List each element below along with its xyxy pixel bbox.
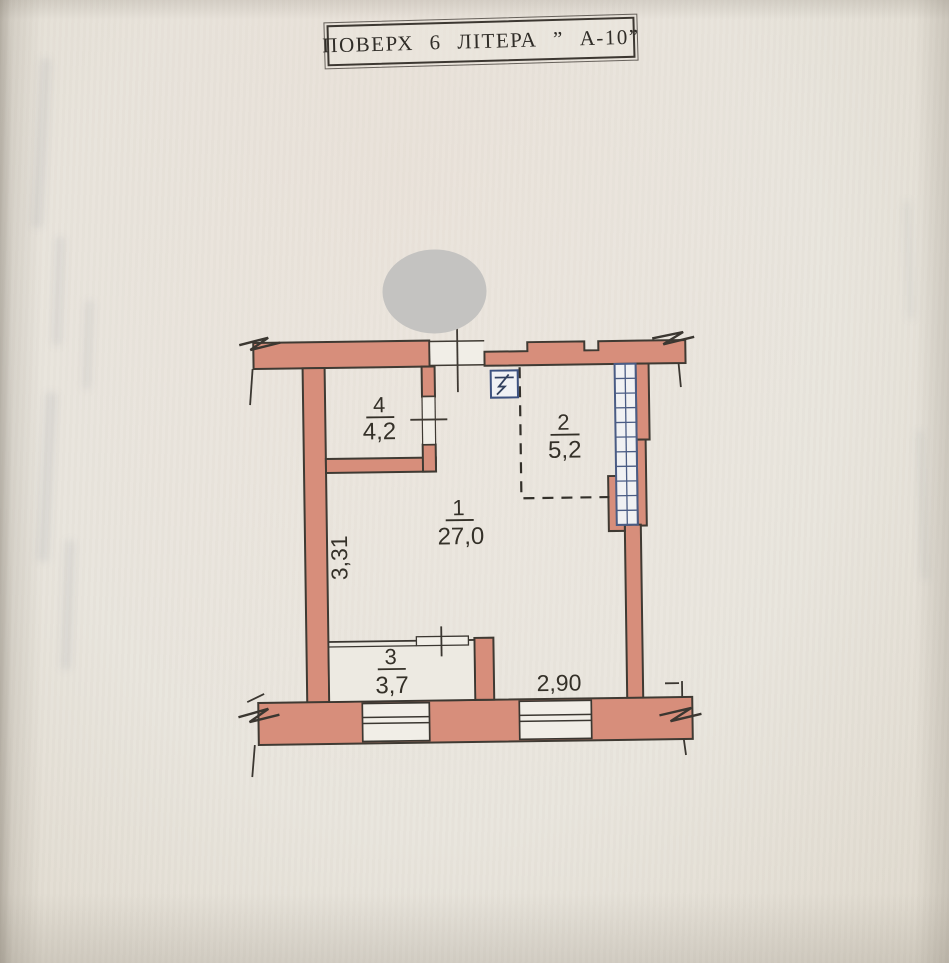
redaction-ellipse (382, 249, 487, 334)
room4-area: 4,2 (363, 418, 397, 445)
room2-number: 2 (557, 410, 570, 435)
ventilation-shaft (615, 364, 638, 525)
room4-number: 4 (373, 392, 386, 417)
window-right (519, 700, 592, 739)
room1-area: 27,0 (437, 523, 484, 551)
room2-label: 2 5,2 (548, 409, 582, 463)
entry-door-opening (429, 324, 485, 393)
wall-room4-right-upper (422, 366, 435, 396)
wall-room3-pier (474, 638, 494, 700)
window-left (362, 703, 430, 742)
room1-number: 1 (452, 495, 465, 520)
room1-label: 1 27,0 (437, 495, 484, 551)
room4-label: 4 4,2 (362, 392, 396, 445)
room3-number: 3 (384, 644, 397, 669)
dimension-bottom-width: 2,90 (536, 669, 581, 696)
door-tick (410, 419, 447, 420)
room2-area: 5,2 (548, 436, 582, 463)
wall-right-lower (625, 525, 643, 700)
room3-opening (416, 636, 468, 646)
wall-bottom (258, 697, 693, 745)
door-axis-line (457, 324, 458, 392)
wall-right-upper (636, 363, 650, 439)
wall-top-left (253, 341, 429, 369)
wall-room4-right-lower (423, 444, 436, 471)
dimension-left-height: 3,31 (326, 535, 353, 580)
scanned-floor-plan-page: ПОВЕРХ 6 ЛІТЕРА ” А-10” (0, 0, 949, 963)
floor-plan-drawing: 4 4,2 2 5,2 1 27,0 3 3,7 3,31 2 (0, 0, 949, 963)
room4-door-opening (410, 396, 448, 445)
room3-area: 3,7 (375, 672, 409, 699)
wall-top-right (484, 340, 685, 366)
wall-room4-bottom (326, 457, 436, 473)
electric-panel-icon (491, 370, 518, 397)
